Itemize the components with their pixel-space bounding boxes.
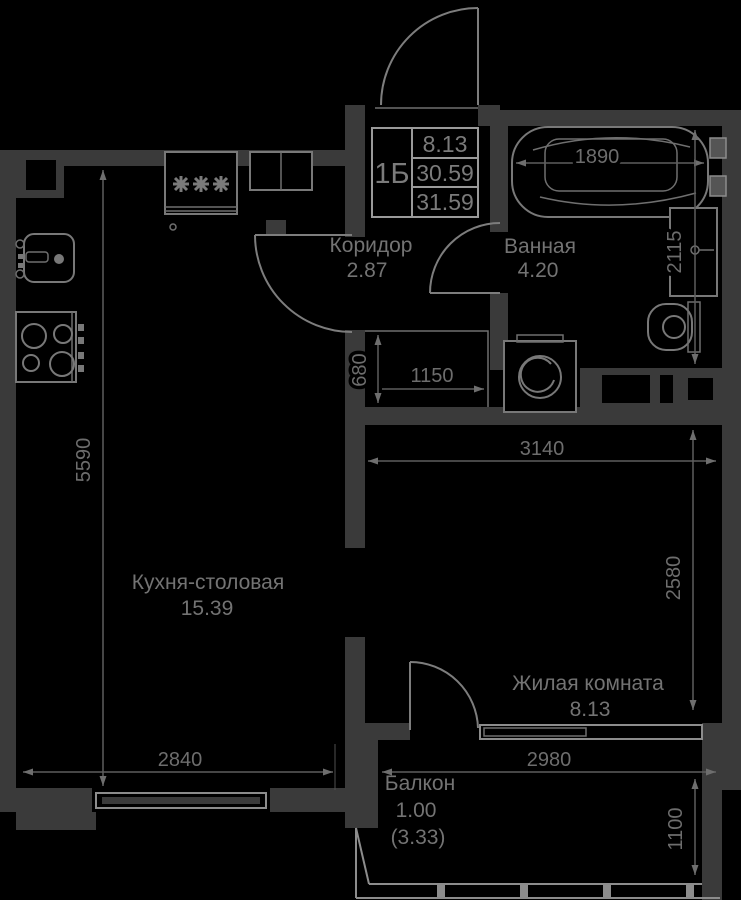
room-area-kitchen: 15.39 xyxy=(181,597,234,620)
room-label-corridor: Коридор xyxy=(330,234,413,257)
kitchen-door-jamb xyxy=(266,220,286,235)
dim-living-depth: 2580 xyxy=(663,556,685,601)
dim-balcony-width: 2980 xyxy=(527,749,572,771)
dim-closet-width: 1150 xyxy=(410,365,453,387)
shaft-hole-3 xyxy=(688,378,713,400)
room-area-balcony-alt: (3.33) xyxy=(391,826,446,849)
dim-bath-length: 1890 xyxy=(575,146,620,168)
room-label-balcony: Балкон xyxy=(385,772,455,795)
bath-tap xyxy=(710,176,726,196)
wall-right xyxy=(722,110,741,790)
entrance-jamb-right xyxy=(478,105,500,126)
dim-kitchen-width: 2840 xyxy=(158,749,203,771)
title-block: 1Б 8.13 30.59 31.59 xyxy=(372,128,478,217)
toilet xyxy=(648,302,700,352)
sink-knob xyxy=(54,254,64,264)
dim-bathroom-depth: 2115 xyxy=(664,230,686,273)
walls xyxy=(0,105,741,900)
dim-living-width: 3140 xyxy=(520,438,565,460)
glazing-mullion xyxy=(520,884,528,898)
stove xyxy=(16,312,84,382)
wall-balcony-left xyxy=(345,740,378,828)
column-notch xyxy=(26,160,56,190)
living-window xyxy=(480,725,702,739)
room-label-living: Жилая комната xyxy=(512,672,664,695)
entrance-jamb-left xyxy=(349,105,365,123)
washing-machine xyxy=(504,335,576,412)
room-label-bathroom: Ванная xyxy=(504,235,576,258)
vent-asterisk xyxy=(213,176,229,192)
kitchen-sink xyxy=(16,234,74,282)
living-area-value: 30.59 xyxy=(416,160,474,186)
wall-center-top xyxy=(345,105,365,237)
living-window-sash xyxy=(484,728,586,736)
wall-living-balcony xyxy=(345,723,410,740)
kitchen-cabinet xyxy=(250,152,312,190)
room-labels: Коридор 2.87 Ванная 4.20 Кухня-столовая … xyxy=(132,234,664,849)
flat-type-label: 1Б xyxy=(374,158,409,190)
wall-bathroom-left-upper xyxy=(490,110,508,232)
vent-shaft xyxy=(165,152,237,230)
room-area-balcony: 1.00 xyxy=(396,799,437,822)
wall-left xyxy=(0,150,16,812)
entrance-door xyxy=(381,8,478,105)
glazing-mullion xyxy=(686,884,694,898)
shaft-hole-2 xyxy=(660,375,673,403)
room-area-value: 8.13 xyxy=(423,131,468,157)
bathtub xyxy=(512,127,708,217)
wall-right-mid xyxy=(702,723,722,777)
wall-bottom-step xyxy=(16,812,96,830)
wall-balcony-right xyxy=(702,777,722,900)
room-area-bathroom: 4.20 xyxy=(518,259,559,282)
glazing-mullion xyxy=(603,884,611,898)
shaft-hole-1 xyxy=(602,375,650,403)
room-label-kitchen: Кухня-столовая xyxy=(132,571,284,594)
floor-plan: 1Б 8.13 30.59 31.59 Коридор 2.87 Ванная … xyxy=(0,0,741,900)
room-area-corridor: 2.87 xyxy=(347,259,388,282)
vent-asterisk xyxy=(193,176,209,192)
total-area-value: 31.59 xyxy=(416,189,474,215)
floor-plan-canvas: 1Б 8.13 30.59 31.59 Коридор 2.87 Ванная … xyxy=(0,0,741,900)
bath-tap xyxy=(710,138,726,158)
bathroom-door xyxy=(430,223,500,293)
room-area-living: 8.13 xyxy=(570,698,611,721)
kitchen-window-sash xyxy=(102,797,260,804)
dim-kitchen-length: 5590 xyxy=(73,438,95,483)
vent-asterisk xyxy=(173,176,189,192)
wall-bathroom-top xyxy=(500,110,741,126)
glazing-mullion xyxy=(437,884,445,898)
dim-closet-depth: 680 xyxy=(349,353,371,386)
dim-balcony-depth: 1100 xyxy=(665,807,687,850)
balcony-door xyxy=(410,662,478,730)
